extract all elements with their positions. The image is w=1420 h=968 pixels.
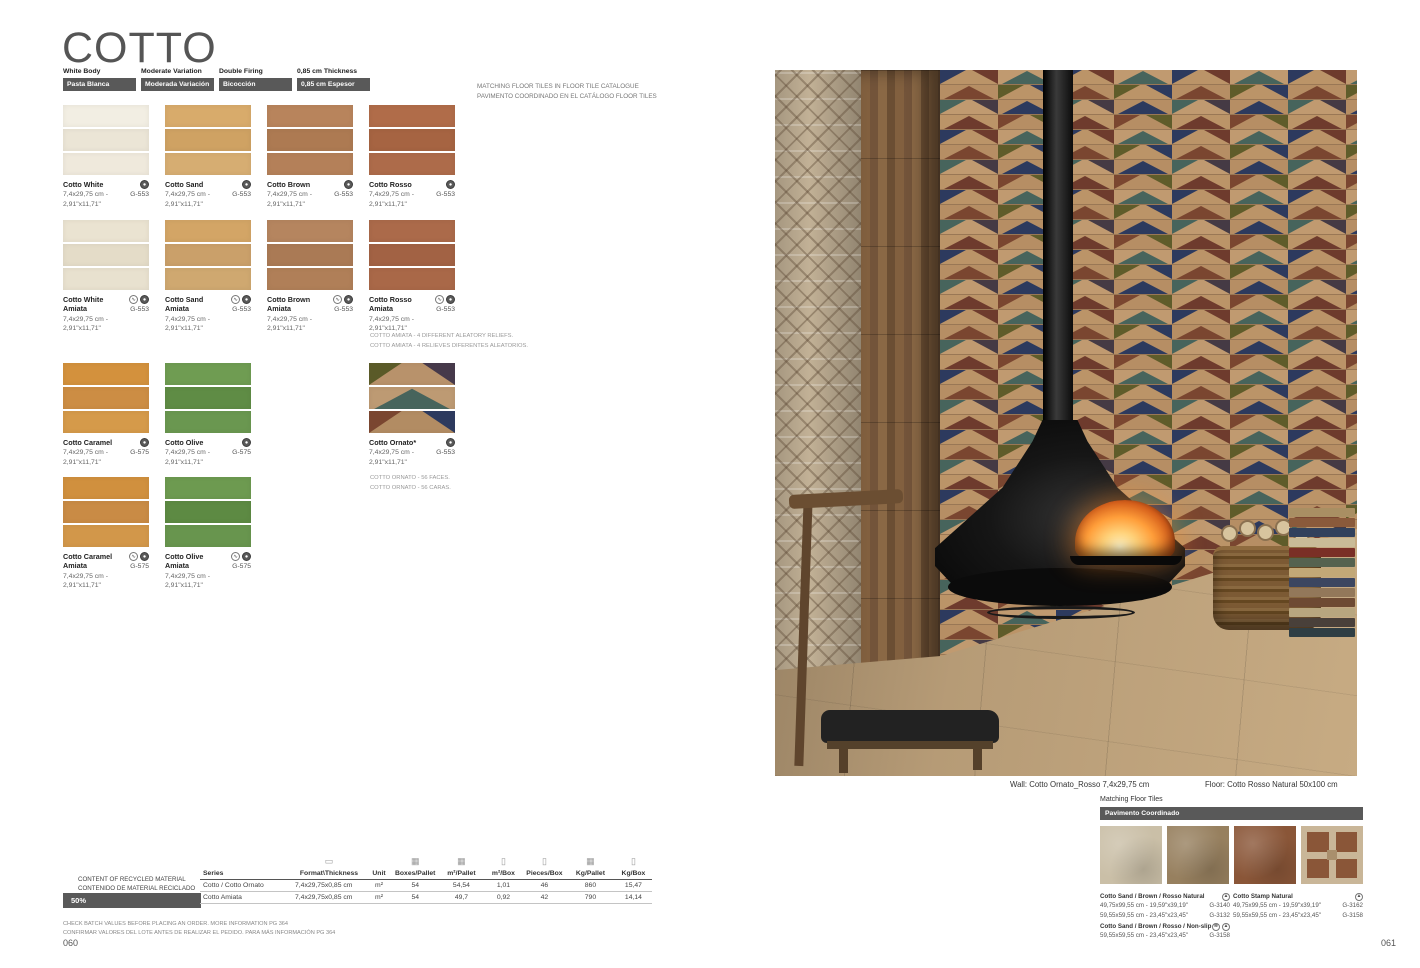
floor-tile-name-row: Cotto Sand / Brown / Rosso / Non-slip ≋▲ [1100, 922, 1230, 931]
floor-tile-name: Cotto Sand / Brown / Rosso / Non-slip [1100, 922, 1211, 931]
spec-badge: 0,85 cm Thickness 0,85 cm Espesor [297, 68, 370, 91]
product-card: Cotto Ornato* 7,4x29,75 cm -2,91"x11,71"… [369, 363, 455, 467]
floor-tile-item: Cotto Sand / Brown / Rosso Natural ▲ 49,… [1100, 892, 1230, 920]
pallet-icon: ▭ [325, 856, 334, 866]
room-photo [775, 70, 1357, 776]
product-icons: ● [232, 180, 251, 189]
boxes-icon: ▦ [586, 856, 595, 866]
gloss-icon: ● [140, 438, 149, 447]
matching-floor-note: MATCHING FLOOR TILES IN FLOOR TILE CATAL… [477, 82, 657, 102]
gloss-icon: ● [242, 438, 251, 447]
product-icons: ● [130, 438, 149, 447]
floor-tile-size: 49,75x99,55 cm - 19,59"x39,19" [1100, 901, 1188, 910]
book-stack [1289, 508, 1355, 638]
tile-strip [165, 387, 251, 409]
floor-tile-size-row: 59,55x59,55 cm - 23,45"x23,45" G-3132 [1100, 911, 1230, 920]
product-name: Cotto Sand [165, 180, 210, 189]
nonslip-icon: ≋ [1212, 923, 1220, 931]
tile-strip [63, 244, 149, 266]
spec-label-es: Moderada Variación [141, 78, 214, 91]
product-name: Cotto Brown [267, 180, 312, 189]
product-size: 7,4x29,75 cm -2,91"x11,71" [267, 315, 330, 334]
packing-table: ▭▦▦▯▯▦▯SeriesFormat\ThicknessUnitBoxes/P… [200, 856, 652, 904]
product-card: Cotto Sand Amiata 7,4x29,75 cm -2,91"x11… [165, 220, 251, 334]
product-row-3: Cotto Caramel 7,4x29,75 cm -2,91"x11,71"… [63, 363, 455, 467]
table-cell: Cotto / Cotto Ornato [200, 880, 292, 892]
gloss-icon: ● [242, 180, 251, 189]
floor-tile-size-row: 49,75x99,55 cm - 19,59"x39,19" G-3162 [1233, 901, 1363, 910]
product-code: G-553 [232, 191, 251, 198]
spec-badge: White Body Pasta Blanca [63, 68, 136, 91]
page-number-right: 061 [1381, 938, 1396, 948]
tile-strip [165, 363, 251, 385]
tile-strip [165, 153, 251, 175]
table-cell: m² [366, 892, 392, 904]
floor-tile-size: 59,55x59,55 cm - 23,45"x23,45" [1100, 911, 1188, 920]
product-icons: ● [130, 180, 149, 189]
gloss-icon: ● [140, 552, 149, 561]
tile-swatch [267, 105, 353, 175]
product-name: Cotto Caramel [63, 438, 112, 447]
catalogue-spread: COTTO White Body Pasta Blanca Moderate V… [0, 0, 1420, 968]
product-size: 7,4x29,75 cm -2,91"x11,71" [369, 190, 414, 209]
product-icons: ● [436, 438, 455, 447]
gloss-icon: ● [446, 180, 455, 189]
tile-strip [63, 153, 149, 175]
product-name: Cotto Sand Amiata [165, 295, 228, 314]
gloss-icon: ● [242, 552, 251, 561]
tile-strip [267, 220, 353, 242]
gloss-icon: ● [446, 295, 455, 304]
tile-strip [165, 525, 251, 547]
structure-icon: ∿ [129, 552, 138, 561]
tile-strip [165, 105, 251, 127]
table-header: Pieces/Box [522, 868, 566, 880]
floor-tile-item: Cotto Stamp Natural ▲ 49,75x99,55 cm - 1… [1233, 892, 1363, 920]
structure-icon: ∿ [129, 295, 138, 304]
product-icons: ● [436, 180, 455, 189]
product-row-2: Cotto White Amiata 7,4x29,75 cm -2,91"x1… [63, 220, 455, 334]
floor-tile-swatch [1234, 826, 1296, 884]
table-cell: 54 [392, 892, 438, 904]
floor-tile-icons: ≋▲ [1212, 923, 1230, 931]
table-header: Format\Thickness [292, 868, 366, 880]
floor-tile-size: 59,55x59,55 cm - 23,45"x23,45" [1100, 931, 1188, 940]
product-size: 7,4x29,75 cm -2,91"x11,71" [63, 190, 108, 209]
tile-strip [369, 268, 455, 290]
product-row-4: Cotto Caramel Amiata 7,4x29,75 cm -2,91"… [63, 477, 455, 591]
floor-tile-size-row: 59,55x59,55 cm - 23,45"x23,45" G-3158 [1100, 931, 1230, 940]
product-size: 7,4x29,75 cm -2,91"x11,71" [165, 315, 228, 334]
chair-frame [827, 741, 993, 749]
product-name: Cotto Ornato* [369, 438, 416, 447]
ornato-triangle [369, 387, 455, 409]
chair-seat [821, 710, 999, 743]
box-icon: ▯ [631, 856, 636, 866]
product-code: G-575 [130, 449, 149, 456]
product-card: Cotto Caramel 7,4x29,75 cm -2,91"x11,71"… [63, 363, 149, 467]
floor-tile-icons: ▲ [1355, 893, 1363, 901]
product-code: G-553 [129, 306, 149, 313]
tile-strip [63, 411, 149, 433]
product-code: G-575 [231, 563, 251, 570]
product-code: G-553 [231, 306, 251, 313]
book [1289, 588, 1355, 597]
product-name: Cotto Brown Amiata [267, 295, 330, 314]
tile-swatch [369, 105, 455, 175]
table-cell: 46 [522, 880, 566, 892]
product-code: G-553 [333, 306, 353, 313]
fireplace-flue [1043, 70, 1073, 430]
table-cell: 49,7 [438, 892, 484, 904]
product-label: Cotto Brown Amiata 7,4x29,75 cm -2,91"x1… [267, 295, 353, 334]
table-cell: 1,01 [484, 880, 522, 892]
ornato-strip [369, 363, 455, 385]
floor-tiles-col-2: Cotto Stamp Natural ▲ 49,75x99,55 cm - 1… [1233, 890, 1363, 920]
book [1289, 518, 1355, 527]
product-name: Cotto Rosso [369, 180, 414, 189]
product-label: Cotto White 7,4x29,75 cm -2,91"x11,71" ●… [63, 180, 149, 209]
matching-floor-note-es: PAVIMENTO COORDINADO EN EL CATÁLOGO FLOO… [477, 92, 657, 102]
tile-strip [369, 220, 455, 242]
product-label: Cotto Rosso Amiata 7,4x29,75 cm -2,91"x1… [369, 295, 455, 334]
floor-tile-code: G-3158 [1209, 931, 1230, 940]
floor-tile-item: Cotto Sand / Brown / Rosso / Non-slip ≋▲… [1100, 922, 1230, 941]
tile-swatch [165, 477, 251, 547]
tile-swatch [165, 220, 251, 290]
product-size: 7,4x29,75 cm -2,91"x11,71" [63, 315, 126, 334]
structure-icon: ∿ [231, 295, 240, 304]
spec-label-en: White Body [63, 68, 136, 75]
tile-strip [369, 153, 455, 175]
floor-tile-swatch [1167, 826, 1229, 884]
product-label: Cotto Olive Amiata 7,4x29,75 cm -2,91"x1… [165, 552, 251, 591]
product-icons: ● [232, 438, 251, 447]
spec-badge: Double Firing Bicocción [219, 68, 292, 91]
product-code: G-553 [334, 191, 353, 198]
structure-icon: ∿ [231, 552, 240, 561]
tile-swatch [63, 477, 149, 547]
product-label: Cotto Caramel Amiata 7,4x29,75 cm -2,91"… [63, 552, 149, 591]
product-name: Cotto White [63, 180, 108, 189]
table-header: Unit [366, 868, 392, 880]
floor-tile-size: 59,55x59,55 cm - 23,45"x23,45" [1233, 911, 1321, 920]
product-card: Cotto White Amiata 7,4x29,75 cm -2,91"x1… [63, 220, 149, 334]
product-size: 7,4x29,75 cm -2,91"x11,71" [63, 448, 112, 467]
book [1289, 618, 1355, 627]
floor-tile-code: G-3162 [1342, 901, 1363, 910]
product-name: Cotto Olive [165, 438, 210, 447]
fireplace-bowl [948, 568, 1172, 606]
tile-swatch [63, 363, 149, 433]
spec-badge: Moderate Variation Moderada Variación [141, 68, 214, 91]
structure-icon: ∿ [333, 295, 342, 304]
table-header: m²/Box [484, 868, 522, 880]
tile-strip [63, 220, 149, 242]
product-icons: ∿● [231, 295, 251, 304]
table-cell: 54 [392, 880, 438, 892]
gloss-icon: ● [140, 180, 149, 189]
table-cell: 42 [522, 892, 566, 904]
product-icons: ∿● [129, 552, 149, 561]
fireplace-lip [1070, 556, 1182, 565]
product-card: Cotto Brown 7,4x29,75 cm -2,91"x11,71" ●… [267, 105, 353, 209]
book [1289, 628, 1355, 637]
tile-strip [165, 129, 251, 151]
book [1289, 578, 1355, 587]
table-header: m²/Pallet [438, 868, 484, 880]
product-label: Cotto White Amiata 7,4x29,75 cm -2,91"x1… [63, 295, 149, 334]
tile-strip [267, 129, 353, 151]
product-label: Cotto Sand Amiata 7,4x29,75 cm -2,91"x11… [165, 295, 251, 334]
product-label: Cotto Ornato* 7,4x29,75 cm -2,91"x11,71"… [369, 438, 455, 467]
tile-strip [267, 153, 353, 175]
product-icons: ∿● [129, 295, 149, 304]
tile-swatch [369, 220, 455, 290]
table-cell: 14,14 [614, 892, 652, 904]
tile-swatch [165, 363, 251, 433]
tile-strip [267, 105, 353, 127]
spec-label-en: Moderate Variation [141, 68, 214, 75]
log [1239, 520, 1256, 537]
tile-strip [267, 268, 353, 290]
floor-tile-code: G-3132 [1209, 911, 1230, 920]
product-name: Cotto Olive Amiata [165, 552, 228, 571]
series-title: COTTO [62, 24, 217, 73]
floor-tile-size: 49,75x99,55 cm - 19,59"x39,19" [1233, 901, 1321, 910]
table-icons-row: ▭▦▦▯▯▦▯ [200, 856, 652, 868]
floor-tile-swatches [1100, 826, 1363, 884]
natural-icon: ▲ [1355, 893, 1363, 901]
order-footnote: CHECK BATCH VALUES BEFORE PLACING AN ORD… [63, 920, 335, 938]
gloss-icon: ● [344, 180, 353, 189]
log [1221, 525, 1238, 542]
product-size: 7,4x29,75 cm -2,91"x11,71" [369, 448, 416, 467]
table-cell: Cotto Amiata [200, 892, 292, 904]
product-name: Cotto Caramel Amiata [63, 552, 126, 571]
product-size: 7,4x29,75 cm -2,91"x11,71" [267, 190, 312, 209]
chair-leg [839, 749, 848, 773]
product-code: G-553 [130, 191, 149, 198]
book [1289, 558, 1355, 567]
product-name: Cotto Rosso Amiata [369, 295, 432, 314]
packing-table-wrap: ▭▦▦▯▯▦▯SeriesFormat\ThicknessUnitBoxes/P… [200, 856, 652, 904]
product-card: Cotto Rosso 7,4x29,75 cm -2,91"x11,71" ●… [369, 105, 455, 209]
table-cell: 7,4x29,75x0,85 cm [292, 892, 366, 904]
floor-tile-name-row: Cotto Stamp Natural ▲ [1233, 892, 1363, 901]
spec-label-es: 0,85 cm Espesor [297, 78, 370, 91]
product-code: G-575 [129, 563, 149, 570]
floor-tile-code: G-3140 [1209, 901, 1230, 910]
product-card: Cotto Sand 7,4x29,75 cm -2,91"x11,71" ● … [165, 105, 251, 209]
table-cell: m² [366, 880, 392, 892]
table-header: Kg/Box [614, 868, 652, 880]
spec-label-en: Double Firing [219, 68, 292, 75]
fireplace-stand-ring [987, 606, 1135, 619]
product-name: Cotto White Amiata [63, 295, 126, 314]
tile-strip [63, 105, 149, 127]
product-size: 7,4x29,75 cm -2,91"x11,71" [63, 572, 126, 591]
product-icons: ∿● [333, 295, 353, 304]
tile-swatch [369, 363, 455, 433]
tile-strip [63, 129, 149, 151]
product-label: Cotto Brown 7,4x29,75 cm -2,91"x11,71" ●… [267, 180, 353, 209]
table-row: Cotto Amiata7,4x29,75x0,85 cmm²5449,70,9… [200, 892, 652, 904]
floor-tile-icons: ▲ [1222, 893, 1230, 901]
tile-strip [63, 387, 149, 409]
product-size: 7,4x29,75 cm -2,91"x11,71" [165, 190, 210, 209]
gloss-icon: ● [140, 295, 149, 304]
matching-floor-tiles-title: Matching Floor Tiles [1100, 796, 1163, 803]
tile-strip [165, 268, 251, 290]
table-row: Cotto / Cotto Ornato7,4x29,75x0,85 cmm²5… [200, 880, 652, 892]
table-header: Series [200, 868, 292, 880]
table-cell: 7,4x29,75x0,85 cm [292, 880, 366, 892]
product-size: 7,4x29,75 cm -2,91"x11,71" [165, 448, 210, 467]
tile-strip [63, 363, 149, 385]
tile-strip [63, 501, 149, 523]
product-icons: ∿● [435, 295, 455, 304]
table-cell: 860 [566, 880, 614, 892]
tile-strip [165, 411, 251, 433]
ornato-note: COTTO ORNATO - 56 FACES. COTTO ORNATO - … [370, 474, 451, 494]
book [1289, 598, 1355, 607]
floor-tile-size-row: 49,75x99,55 cm - 19,59"x39,19" G-3140 [1100, 901, 1230, 910]
product-card: Cotto White 7,4x29,75 cm -2,91"x11,71" ●… [63, 105, 149, 209]
floor-tile-swatch [1100, 826, 1162, 884]
floor-tile-name: Cotto Sand / Brown / Rosso Natural [1100, 892, 1205, 901]
tile-strip [63, 268, 149, 290]
product-label: Cotto Caramel 7,4x29,75 cm -2,91"x11,71"… [63, 438, 149, 467]
recycled-material-label: CONTENT OF RECYCLED MATERIAL CONTENIDO D… [78, 875, 195, 894]
floor-tile-size-row: 59,55x59,55 cm - 23,45"x23,45" G-3158 [1233, 911, 1363, 920]
tile-strip [63, 477, 149, 499]
product-card: Cotto Olive Amiata 7,4x29,75 cm -2,91"x1… [165, 477, 251, 591]
table-header-row: SeriesFormat\ThicknessUnitBoxes/Palletm²… [200, 868, 652, 880]
product-card: Cotto Rosso Amiata 7,4x29,75 cm -2,91"x1… [369, 220, 455, 334]
pavimento-coordinado-badge: Pavimento Coordinado [1100, 807, 1363, 820]
chair-leg [973, 749, 982, 770]
product-size: 7,4x29,75 cm -2,91"x11,71" [369, 315, 432, 334]
spec-label-es: Bicocción [219, 78, 292, 91]
tile-strip [63, 525, 149, 547]
product-row-1: Cotto White 7,4x29,75 cm -2,91"x11,71" ●… [63, 105, 455, 209]
tile-strip [165, 244, 251, 266]
floor-tiles-col-1: Cotto Sand / Brown / Rosso Natural ▲ 49,… [1100, 890, 1230, 940]
floor-tile-swatch-stamp [1301, 826, 1363, 884]
tile-strip [165, 220, 251, 242]
table-cell: 790 [566, 892, 614, 904]
product-card: Cotto Olive 7,4x29,75 cm -2,91"x11,71" ●… [165, 363, 251, 467]
tile-swatch [267, 220, 353, 290]
ornato-strip [369, 387, 455, 409]
product-card: Cotto Caramel Amiata 7,4x29,75 cm -2,91"… [63, 477, 149, 591]
product-icons: ● [334, 180, 353, 189]
product-label: Cotto Rosso 7,4x29,75 cm -2,91"x11,71" ●… [369, 180, 455, 209]
photo-caption-floor: Floor: Cotto Rosso Natural 50x100 cm [1205, 780, 1338, 789]
spec-label-es: Pasta Blanca [63, 78, 136, 91]
floor-tile-code: G-3158 [1342, 911, 1363, 920]
box-icon: ▯ [542, 856, 547, 866]
table-cell: 0,92 [484, 892, 522, 904]
amiata-note: COTTO AMIATA - 4 DIFFERENT ALEATORY RELI… [370, 332, 528, 352]
natural-icon: ▲ [1222, 923, 1230, 931]
product-label: Cotto Olive 7,4x29,75 cm -2,91"x11,71" ●… [165, 438, 251, 467]
table-header: Kg/Pallet [566, 868, 614, 880]
book [1289, 538, 1355, 547]
table-header: Boxes/Pallet [392, 868, 438, 880]
tile-strip [369, 244, 455, 266]
product-code: G-553 [435, 306, 455, 313]
floor-tile-name-row: Cotto Sand / Brown / Rosso Natural ▲ [1100, 892, 1230, 901]
table-cell: 15,47 [614, 880, 652, 892]
spec-badges: White Body Pasta Blanca Moderate Variati… [63, 68, 370, 91]
floor-tile-name: Cotto Stamp Natural [1233, 892, 1293, 901]
product-label: Cotto Sand 7,4x29,75 cm -2,91"x11,71" ● … [165, 180, 251, 209]
page-number-left: 060 [63, 938, 78, 948]
product-icons: ∿● [231, 552, 251, 561]
log [1257, 524, 1274, 541]
book [1289, 528, 1355, 537]
product-code: G-553 [436, 191, 455, 198]
tile-swatch [63, 220, 149, 290]
gloss-icon: ● [242, 295, 251, 304]
gloss-icon: ● [344, 295, 353, 304]
tile-strip [369, 105, 455, 127]
matching-floor-note-en: MATCHING FLOOR TILES IN FLOOR TILE CATAL… [477, 82, 657, 92]
tile-strip [369, 129, 455, 151]
structure-icon: ∿ [435, 295, 444, 304]
tile-strip [267, 244, 353, 266]
product-code: G-575 [232, 449, 251, 456]
box-icon: ▯ [501, 856, 506, 866]
book [1289, 568, 1355, 577]
product-size: 7,4x29,75 cm -2,91"x11,71" [165, 572, 228, 591]
product-code: G-553 [436, 449, 455, 456]
product-card: Cotto Brown Amiata 7,4x29,75 cm -2,91"x1… [267, 220, 353, 334]
boxes-icon: ▦ [411, 856, 420, 866]
table-cell: 54,54 [438, 880, 484, 892]
natural-icon: ▲ [1222, 893, 1230, 901]
ornato-strip [369, 411, 455, 433]
tile-strip [165, 501, 251, 523]
book [1289, 548, 1355, 557]
tile-swatch [63, 105, 149, 175]
recycled-material-value: 50% [63, 893, 201, 908]
book [1289, 508, 1355, 517]
book [1289, 608, 1355, 617]
boxes-icon: ▦ [457, 856, 466, 866]
photo-caption-wall: Wall: Cotto Ornato_Rosso 7,4x29,75 cm [1010, 780, 1149, 789]
tile-swatch [165, 105, 251, 175]
gloss-icon: ● [446, 438, 455, 447]
tile-strip [165, 477, 251, 499]
spec-label-en: 0,85 cm Thickness [297, 68, 370, 75]
